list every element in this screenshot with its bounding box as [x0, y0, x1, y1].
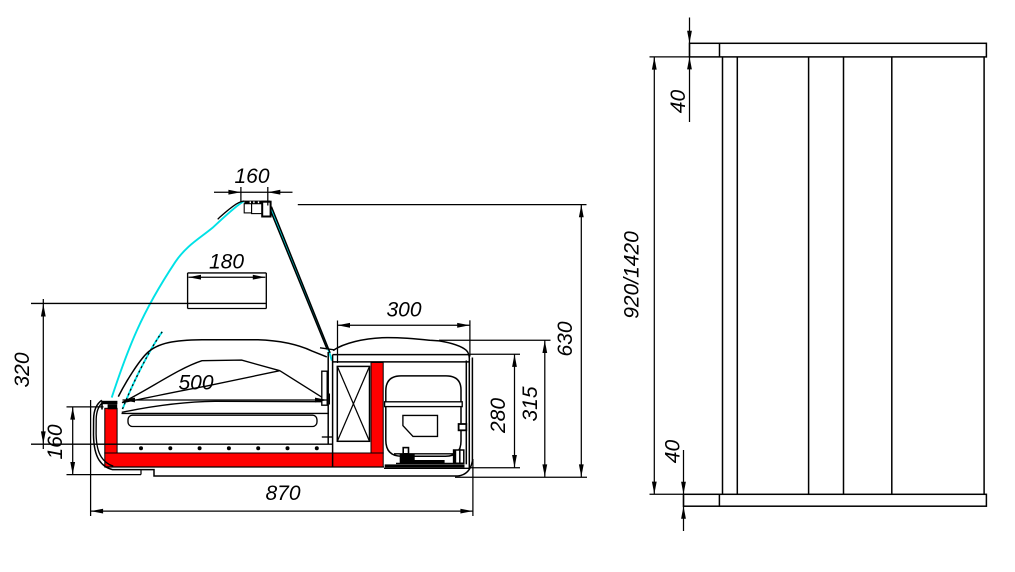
svg-text:40: 40	[662, 440, 685, 464]
svg-text:160: 160	[234, 165, 269, 188]
svg-text:160: 160	[44, 424, 67, 459]
svg-text:40: 40	[667, 90, 690, 114]
svg-text:920/1420: 920/1420	[621, 231, 644, 319]
svg-text:300: 300	[386, 299, 421, 322]
svg-text:500: 500	[178, 372, 213, 395]
svg-text:180: 180	[209, 251, 244, 274]
svg-text:280: 280	[487, 398, 510, 434]
svg-text:320: 320	[11, 352, 34, 387]
svg-text:870: 870	[265, 482, 300, 505]
svg-text:630: 630	[554, 321, 577, 356]
svg-text:315: 315	[519, 386, 542, 421]
